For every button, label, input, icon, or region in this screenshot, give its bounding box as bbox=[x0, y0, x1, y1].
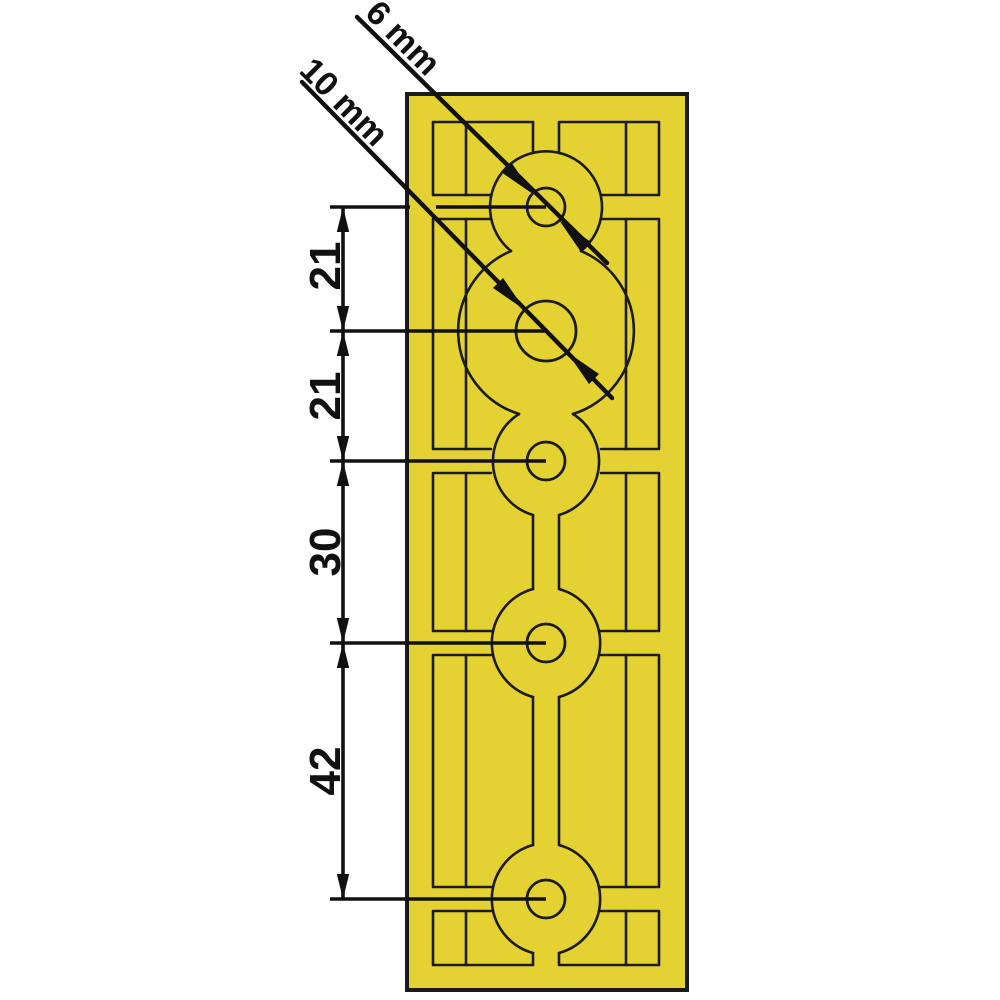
technical-drawing: 21 21 30 42 6 mm 10 mm bbox=[0, 0, 1000, 1000]
arrow-down-331 bbox=[337, 306, 349, 331]
arrow-up-461 bbox=[337, 461, 349, 486]
arrow-down-899 bbox=[337, 874, 349, 899]
leader-label-6mm: 6 mm bbox=[358, 0, 448, 83]
dim-label-21-second: 21 bbox=[301, 372, 350, 421]
arrow-up-331 bbox=[337, 331, 349, 356]
dim-label-21-top: 21 bbox=[301, 242, 350, 291]
arrow-up-643 bbox=[337, 643, 349, 668]
drawing-canvas: 21 21 30 42 6 mm 10 mm bbox=[0, 0, 1000, 1000]
arrow-down-643 bbox=[337, 618, 349, 643]
arrow-down-461 bbox=[337, 436, 349, 461]
dim-label-42: 42 bbox=[301, 747, 350, 796]
dim-label-30: 30 bbox=[301, 528, 350, 577]
arrow-up-207 bbox=[337, 207, 349, 232]
leader-label-10mm: 10 mm bbox=[292, 51, 395, 154]
plate-body bbox=[407, 94, 687, 990]
